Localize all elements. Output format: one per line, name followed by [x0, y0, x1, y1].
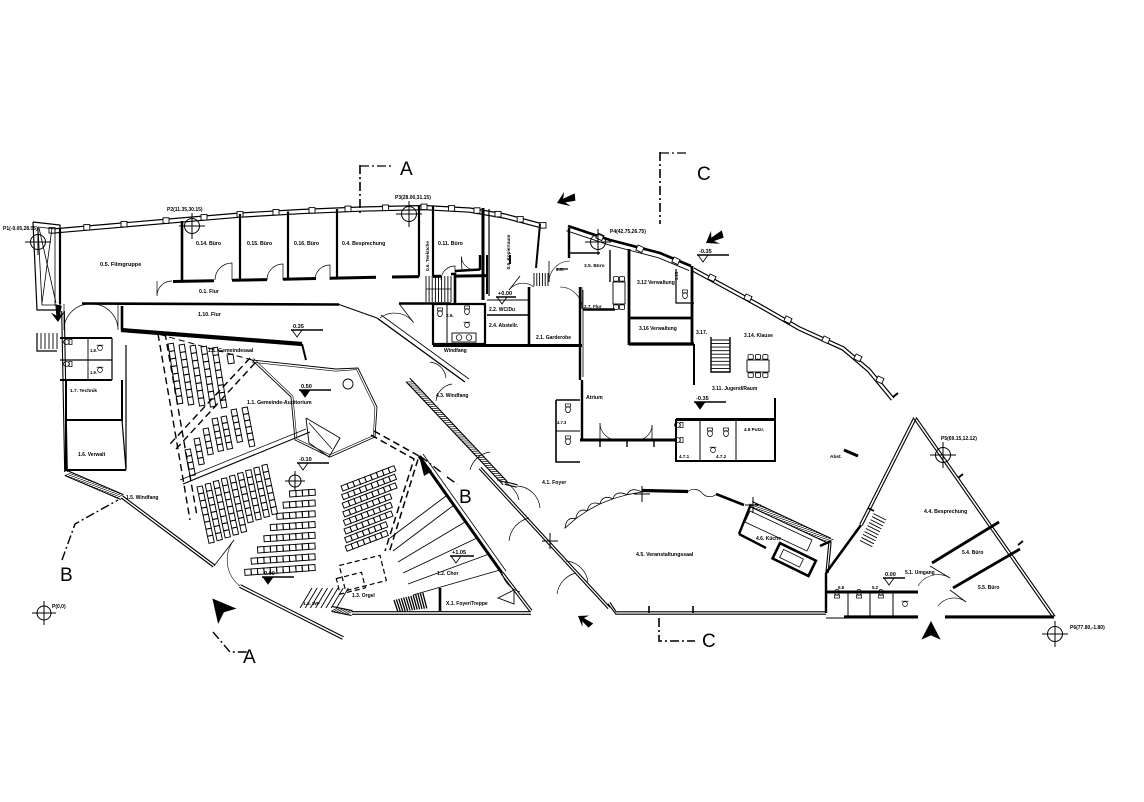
svg-text:5.5. Büro: 5.5. Büro — [978, 585, 999, 591]
svg-text:A: A — [400, 159, 413, 180]
svg-text:-0.35: -0.35 — [699, 249, 712, 255]
svg-text:1.1. Gemeindesaal: 1.1. Gemeindesaal — [208, 348, 254, 354]
svg-text:0.9. Kopierraum: 0.9. Kopierraum — [506, 235, 511, 270]
svg-text:-0.10: -0.10 — [299, 457, 312, 463]
svg-text:1.3. Orgel: 1.3. Orgel — [352, 593, 375, 599]
svg-text:2.6.: 2.6. — [446, 313, 454, 318]
svg-text:2.5.: 2.5. — [556, 267, 564, 273]
svg-text:P(0,0): P(0,0) — [52, 604, 66, 610]
svg-text:4.7.1: 4.7.1 — [679, 454, 690, 459]
svg-text:Atrium: Atrium — [586, 395, 603, 401]
svg-text:P4(42.75,26.75): P4(42.75,26.75) — [610, 229, 646, 235]
svg-text:1.9.: 1.9. — [90, 370, 97, 375]
svg-text:P1(-0.05,28.05): P1(-0.05,28.05) — [3, 226, 38, 232]
svg-text:P5(69.15,12.12): P5(69.15,12.12) — [941, 436, 977, 442]
svg-text:1.10. Flur: 1.10. Flur — [198, 312, 221, 318]
svg-text:0.35: 0.35 — [293, 324, 304, 330]
svg-text:A: A — [243, 647, 256, 668]
svg-text:0.4. Besprechung: 0.4. Besprechung — [342, 241, 385, 247]
svg-text:0.15. Büro: 0.15. Büro — [247, 241, 272, 247]
svg-text:0.6. Teeküche: 0.6. Teeküche — [425, 241, 430, 271]
svg-text:P6(77.80,-1.80): P6(77.80,-1.80) — [1070, 625, 1105, 631]
svg-text:5.4. Büro: 5.4. Büro — [962, 550, 983, 556]
svg-text:5.1. Umgang: 5.1. Umgang — [905, 570, 935, 576]
svg-text:2.1. Garderobe: 2.1. Garderobe — [536, 335, 571, 341]
svg-text:0.00: 0.00 — [885, 572, 896, 578]
svg-text:3.5. Büro: 3.5. Büro — [584, 263, 605, 269]
svg-text:3.14. Klause: 3.14. Klause — [744, 333, 773, 339]
svg-text:1.1. Gemeinde-Auditorium: 1.1. Gemeinde-Auditorium — [247, 400, 312, 406]
svg-text:B: B — [60, 565, 73, 586]
svg-text:B: B — [459, 487, 472, 508]
svg-text:2.2. WC/Du: 2.2. WC/Du — [489, 307, 515, 313]
svg-text:3.15: 3.15 — [674, 271, 679, 280]
svg-text:C: C — [702, 631, 716, 652]
svg-text:3.11. Jugend/Raum: 3.11. Jugend/Raum — [712, 386, 758, 392]
svg-text:0.14. Büro: 0.14. Büro — [196, 241, 221, 247]
svg-text:2.4. Abstellr.: 2.4. Abstellr. — [489, 323, 519, 329]
svg-text:0.5. Filmgruppe: 0.5. Filmgruppe — [100, 262, 141, 268]
svg-text:3.17.: 3.17. — [696, 330, 708, 336]
svg-text:4.1. Foyer: 4.1. Foyer — [542, 480, 566, 486]
svg-text:1.6. Verwalt: 1.6. Verwalt — [78, 452, 106, 458]
svg-text:0.16. Büro: 0.16. Büro — [294, 241, 319, 247]
svg-text:1.3. WF: 1.3. WF — [303, 601, 320, 607]
svg-text:C: C — [697, 164, 711, 185]
svg-text:1.7. Technik: 1.7. Technik — [70, 388, 97, 394]
svg-text:Windfang: Windfang — [444, 348, 467, 354]
svg-text:2.7. Flur: 2.7. Flur — [584, 304, 602, 309]
svg-text:4.8 Putzr.: 4.8 Putzr. — [744, 427, 764, 432]
svg-text:3.16 Verwaltung: 3.16 Verwaltung — [639, 326, 677, 332]
svg-text:4.5. Veranstaltungssaal: 4.5. Veranstaltungssaal — [636, 552, 694, 558]
svg-text:-0.35: -0.35 — [696, 396, 709, 402]
svg-text:+0.00: +0.00 — [498, 291, 512, 297]
svg-text:P2(11.35,30.15): P2(11.35,30.15) — [167, 207, 203, 213]
svg-text:3.12 Verwaltung: 3.12 Verwaltung — [637, 280, 675, 286]
svg-text:5.8: 5.8 — [838, 585, 845, 590]
svg-text:5.2: 5.2 — [872, 585, 879, 590]
svg-text:4.6. Küche: 4.6. Küche — [756, 536, 781, 542]
svg-text:0.1. Flur: 0.1. Flur — [199, 289, 219, 295]
svg-text:1.2. Chor: 1.2. Chor — [437, 571, 458, 577]
svg-text:0.50: 0.50 — [301, 384, 312, 390]
svg-text:4.7.3: 4.7.3 — [557, 420, 567, 425]
svg-text:0.11. Büro: 0.11. Büro — [438, 241, 463, 247]
svg-text:1.5. Windfang: 1.5. Windfang — [126, 495, 158, 501]
svg-text:+1.05: +1.05 — [452, 550, 466, 556]
svg-text:4.4. Besprechung: 4.4. Besprechung — [924, 509, 967, 515]
svg-text:X.1. Foyer/Treppe: X.1. Foyer/Treppe — [446, 601, 488, 607]
svg-text:1.8.: 1.8. — [90, 348, 97, 353]
svg-text:Abst.: Abst. — [830, 454, 842, 460]
svg-text:P3(28.00,31.15): P3(28.00,31.15) — [395, 195, 431, 201]
svg-text:4.7.2: 4.7.2 — [716, 454, 727, 459]
svg-text:4.3. Windfang: 4.3. Windfang — [436, 393, 468, 399]
